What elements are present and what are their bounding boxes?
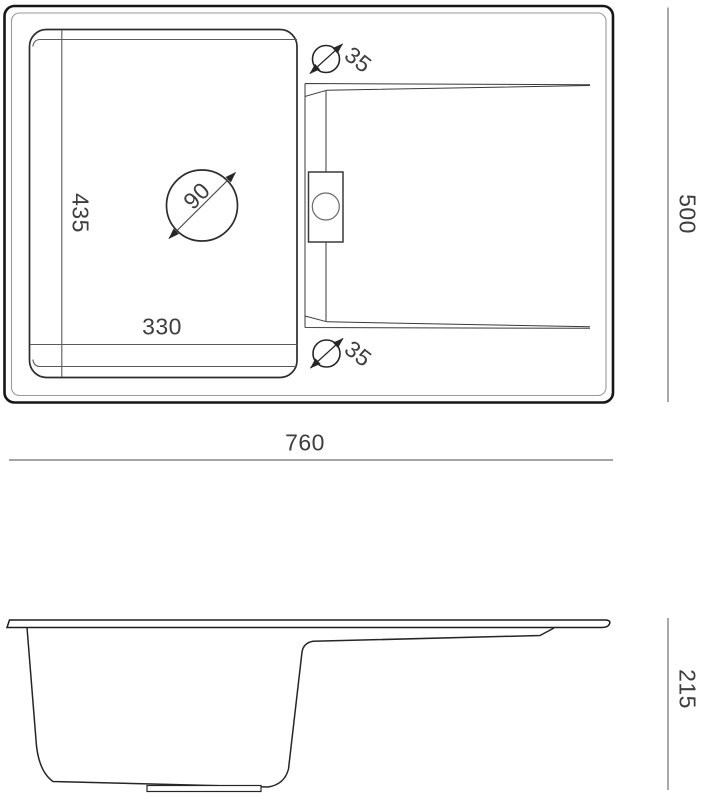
side-profile <box>27 628 554 788</box>
drawing-linework <box>0 0 704 800</box>
side-view <box>7 620 610 792</box>
dimension-label-bowl-depth: 435 <box>67 193 94 233</box>
drain-boss <box>147 786 261 792</box>
faucet-hole-plate <box>309 172 344 242</box>
dimension-label-bowl-width: 330 <box>142 314 182 341</box>
dimension-label-overall-depth: 500 <box>674 194 701 234</box>
side-rim <box>7 620 610 628</box>
faucet-hole <box>309 172 344 242</box>
technical-drawing-canvas: 435 330 90 35 35 760 500 215 <box>0 0 704 800</box>
dimension-label-height: 215 <box>674 669 701 709</box>
dimension-label-overall-width: 760 <box>285 430 325 457</box>
top-view <box>5 6 614 403</box>
